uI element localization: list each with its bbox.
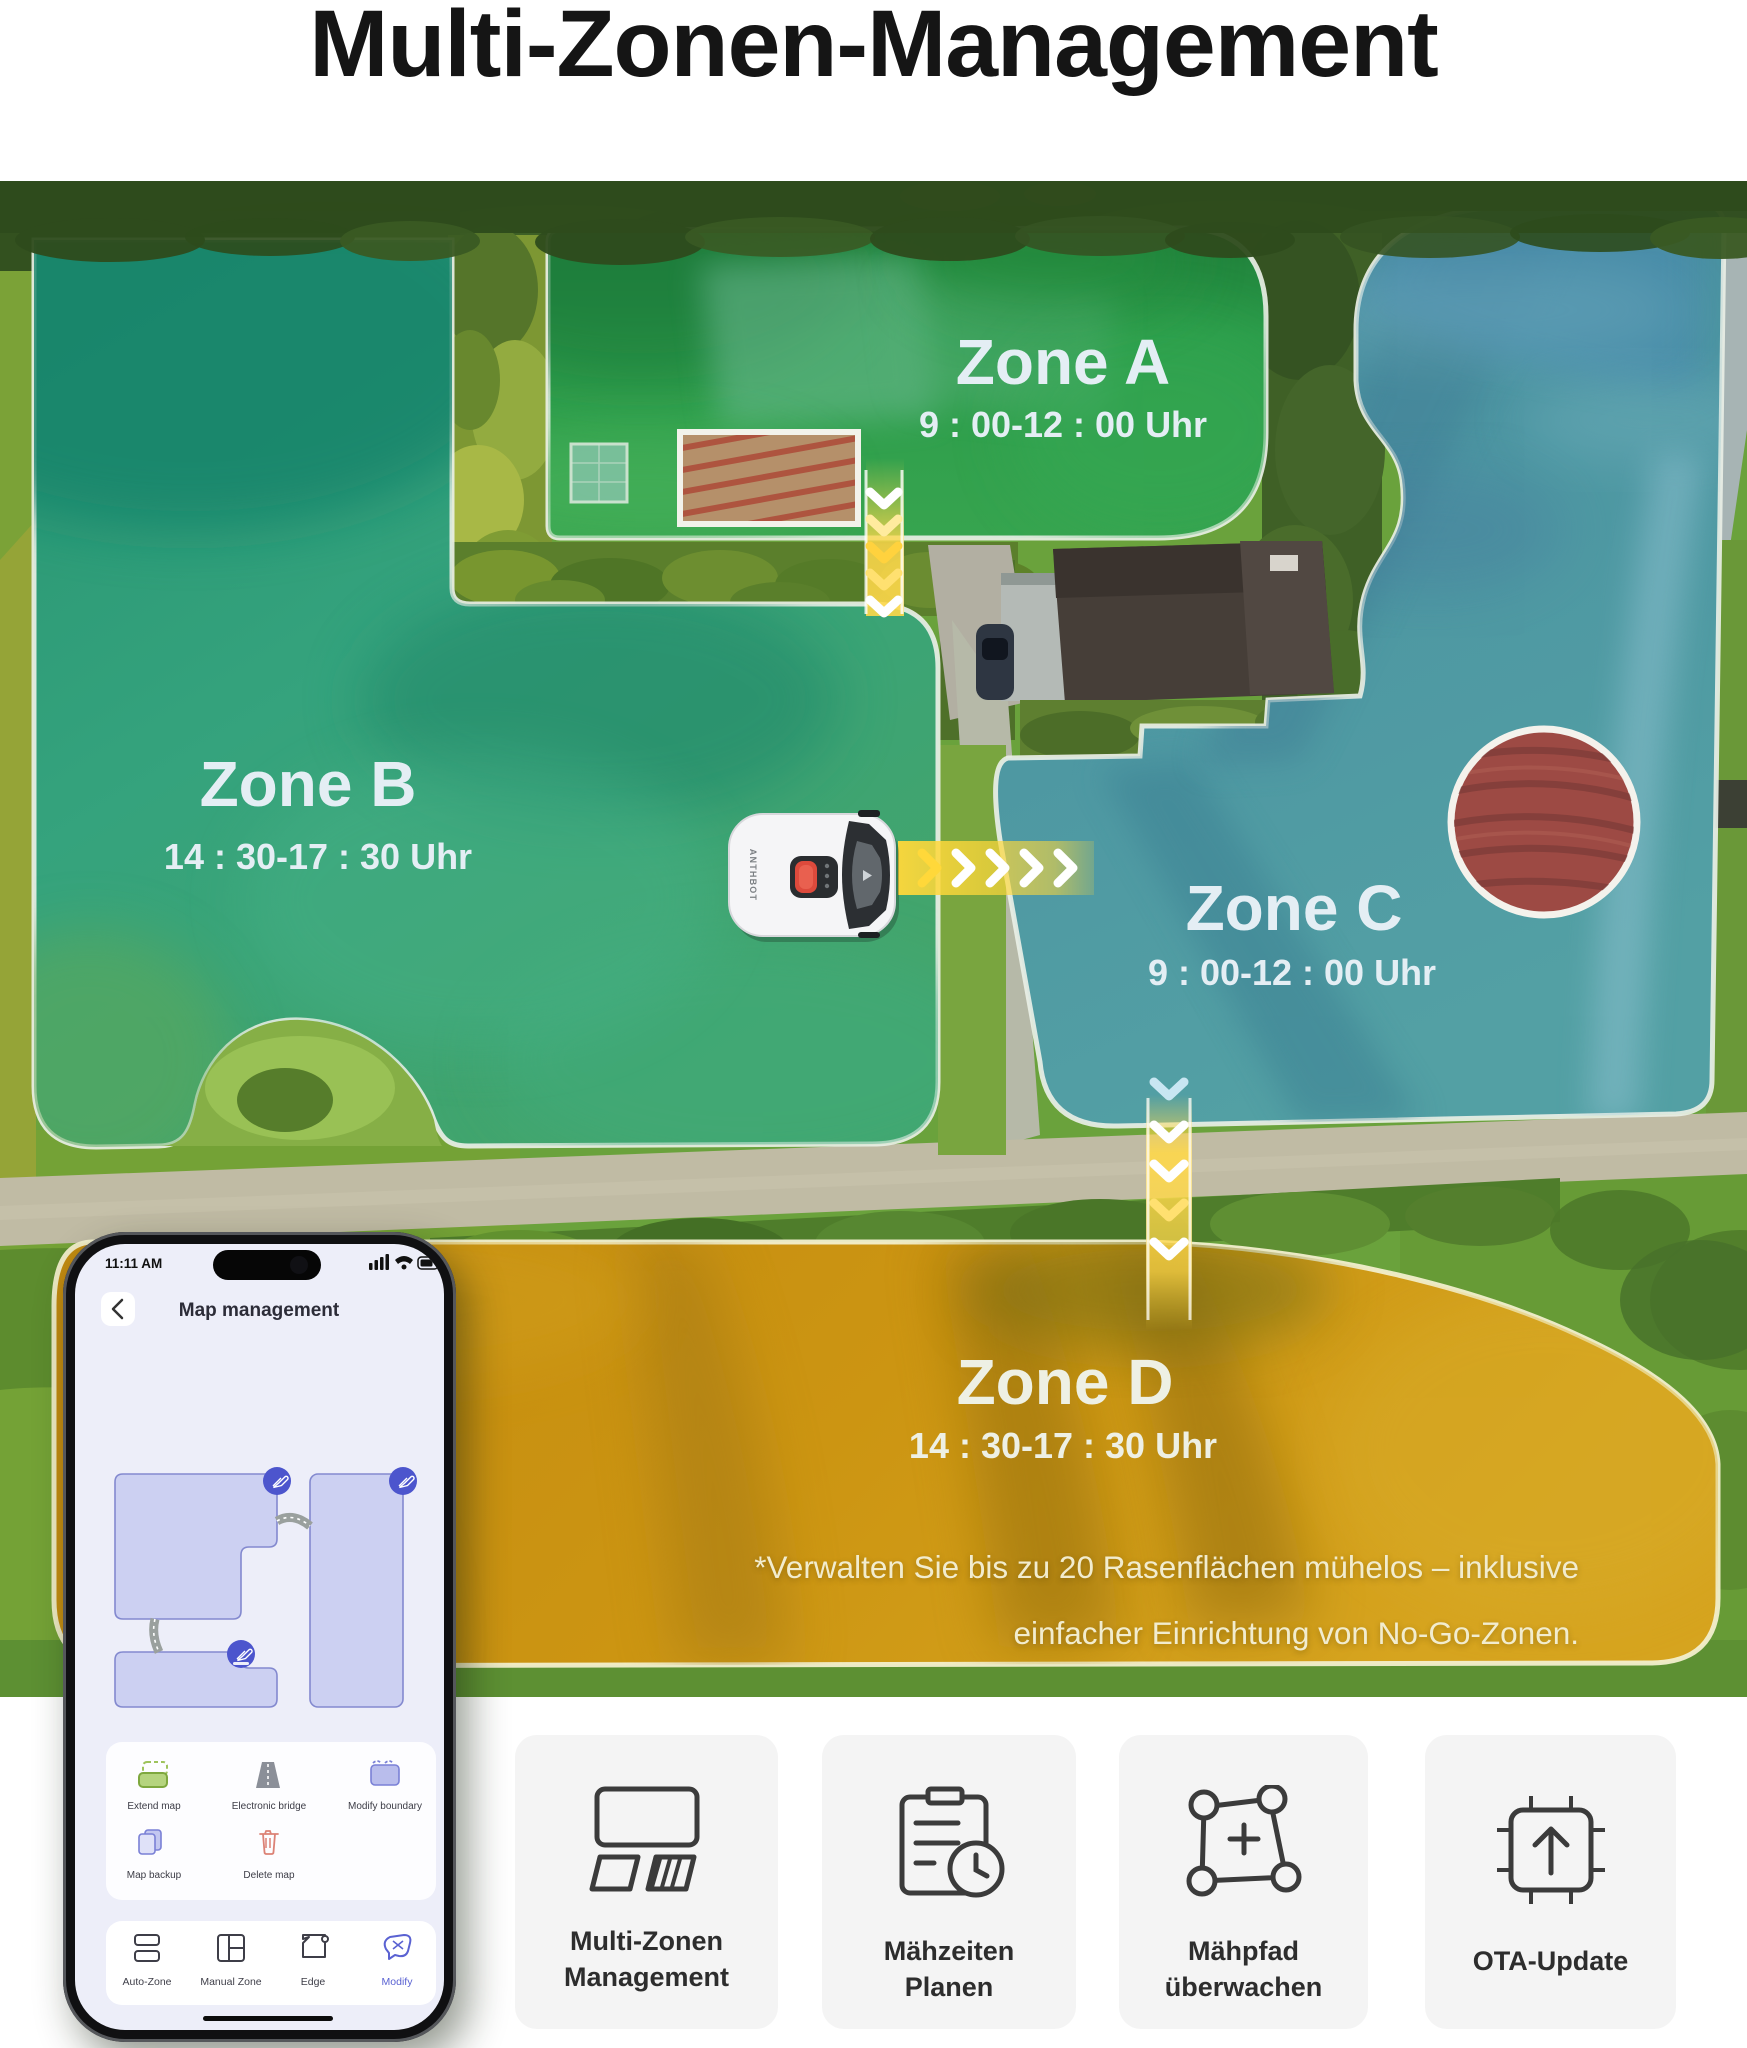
svg-text:Electronic bridge: Electronic bridge [232,1801,307,1812]
svg-text:14 : 30-17 : 30 Uhr: 14 : 30-17 : 30 Uhr [909,1425,1217,1466]
svg-text:Map management: Map management [179,1300,340,1321]
svg-text:Modify boundary: Modify boundary [348,1801,422,1812]
svg-text:11:11 AM: 11:11 AM [105,1256,162,1271]
svg-text:ANTHBOT: ANTHBOT [748,849,758,901]
svg-text:Zone A: Zone A [956,326,1171,398]
svg-text:Edge: Edge [301,1976,326,1988]
svg-text:Zone C: Zone C [1186,872,1403,944]
svg-text:9 : 00-12 : 00 Uhr: 9 : 00-12 : 00 Uhr [919,404,1207,445]
svg-text:Manual Zone: Manual Zone [200,1976,261,1988]
svg-text:Delete map: Delete map [243,1870,295,1881]
svg-text:Zone D: Zone D [957,1346,1174,1418]
svg-text:Auto-Zone: Auto-Zone [122,1976,171,1988]
svg-text:14 : 30-17 : 30 Uhr: 14 : 30-17 : 30 Uhr [164,836,472,877]
svg-text:9 : 00-12 : 00 Uhr: 9 : 00-12 : 00 Uhr [1148,952,1436,993]
svg-text:Modify: Modify [382,1976,414,1988]
svg-text:Map backup: Map backup [127,1870,182,1881]
svg-text:Extend map: Extend map [127,1801,181,1812]
svg-text:Zone B: Zone B [200,748,417,820]
